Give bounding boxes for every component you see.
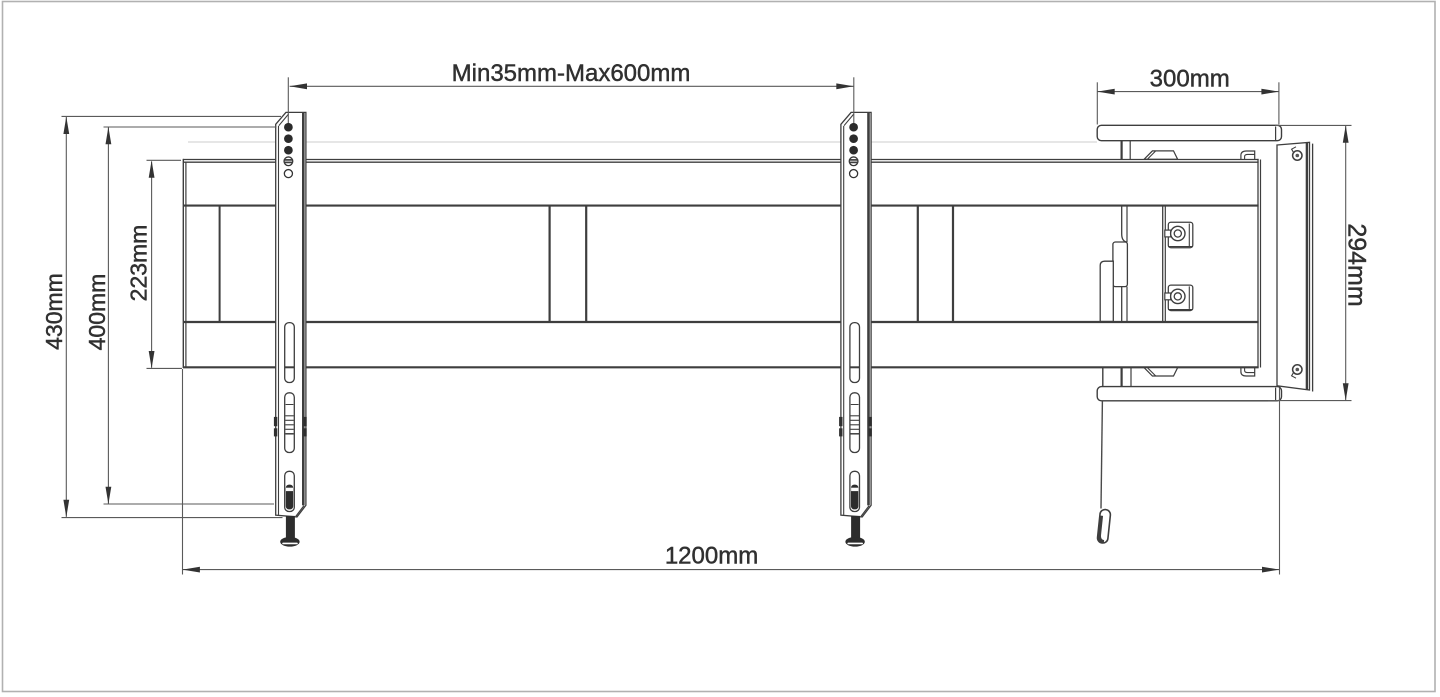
svg-text:Min35mm-Max600mm: Min35mm-Max600mm <box>452 60 691 87</box>
svg-text:300mm: 300mm <box>1150 66 1230 93</box>
svg-text:400mm: 400mm <box>84 274 110 351</box>
svg-text:1200mm: 1200mm <box>665 543 758 570</box>
svg-text:223mm: 223mm <box>125 225 151 302</box>
svg-text:430mm: 430mm <box>41 273 67 350</box>
svg-text:294mm: 294mm <box>1343 223 1371 306</box>
